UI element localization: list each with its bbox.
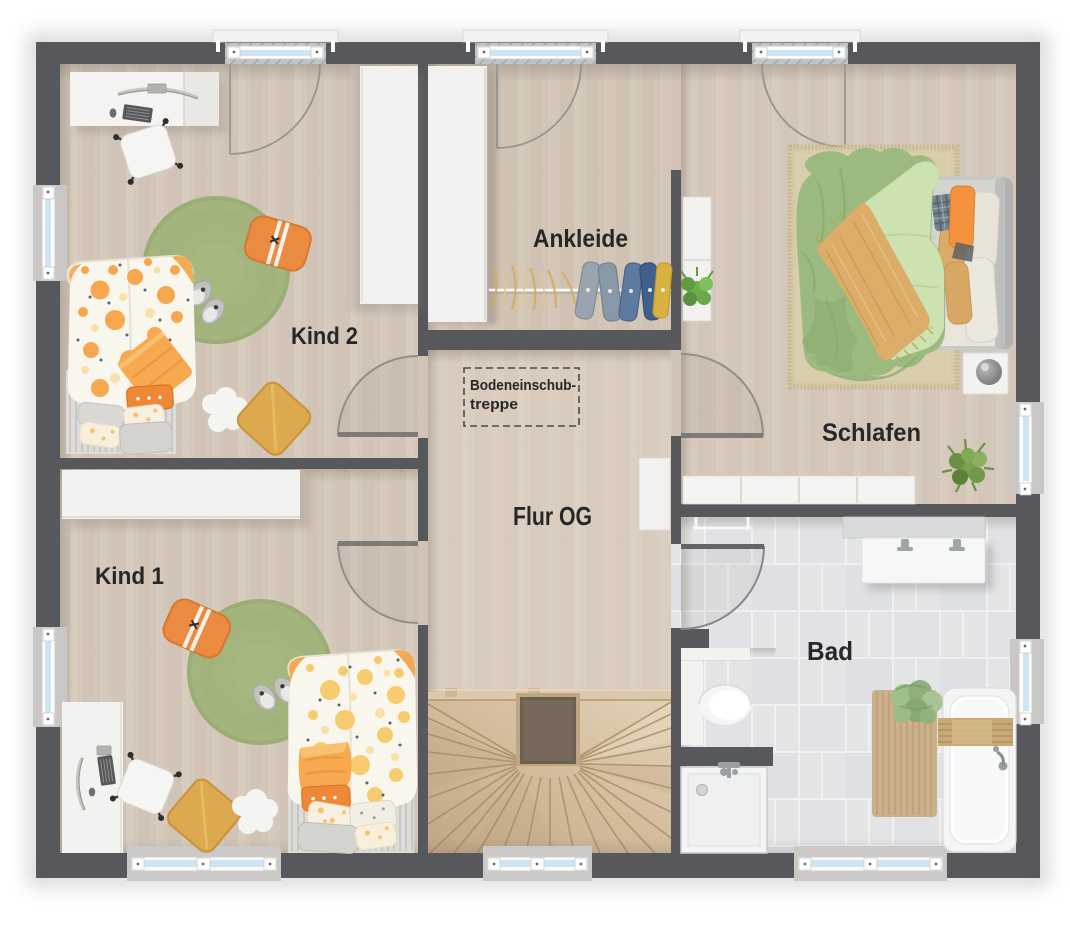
svg-text:Ankleide: Ankleide <box>533 225 628 253</box>
svg-text:Kind 2: Kind 2 <box>291 323 358 350</box>
svg-text:Schlafen: Schlafen <box>822 419 921 447</box>
svg-text:Flur OG: Flur OG <box>513 501 592 531</box>
svg-text:Kind 1: Kind 1 <box>95 563 164 590</box>
svg-text:treppe: treppe <box>470 396 518 413</box>
svg-text:Bodeneinschub-: Bodeneinschub- <box>470 377 576 394</box>
svg-text:Bad: Bad <box>807 636 853 666</box>
